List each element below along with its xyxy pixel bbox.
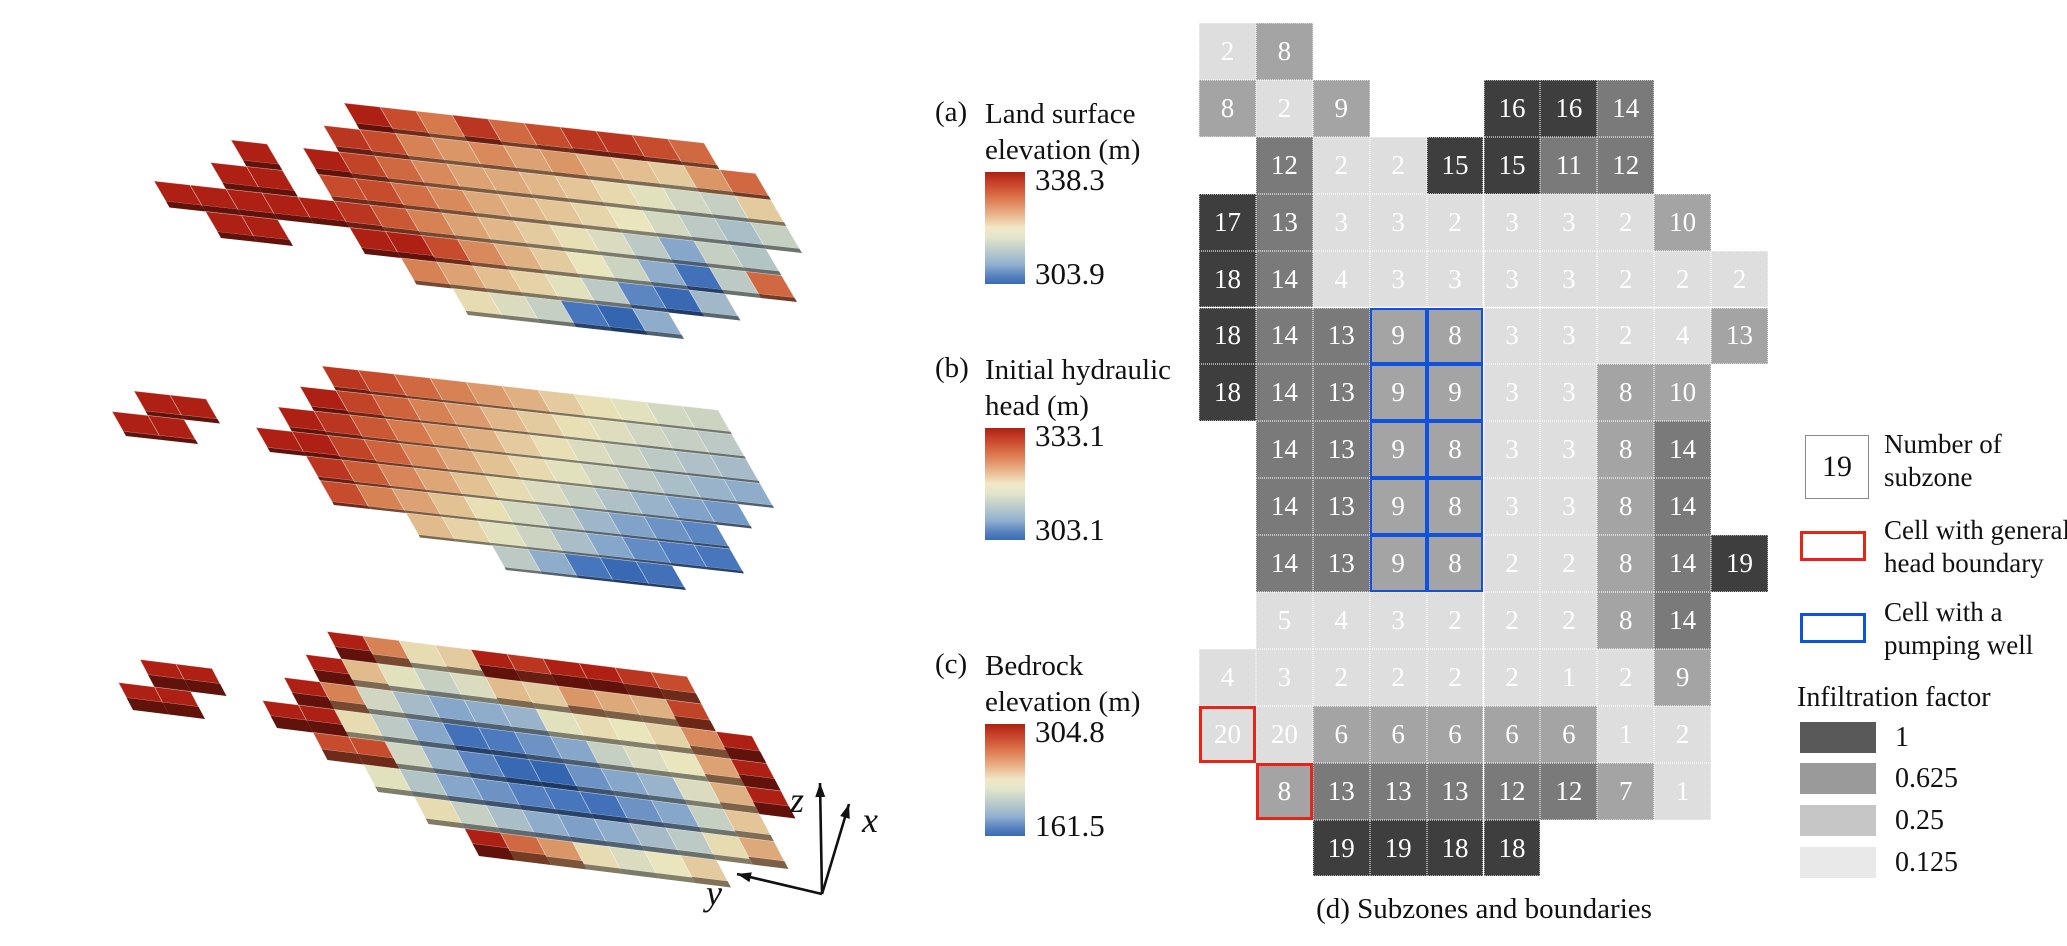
grid-cell: 3	[1540, 364, 1597, 421]
grid-cell: 2	[1199, 23, 1256, 80]
grid-cell: 13	[1427, 763, 1484, 820]
colorbar-c-max: 304.8	[1035, 714, 1105, 750]
grid-cell: 3	[1370, 592, 1427, 649]
x-axis-arrow	[822, 804, 849, 894]
legend-general-head-boundary-label: Cell with generalhead boundary	[1884, 514, 2067, 580]
grid-cell-pumping-well: 8	[1427, 308, 1484, 365]
grid-cell: 8	[1256, 23, 1313, 80]
grid-cell: 20	[1256, 706, 1313, 763]
grid-cell: 2	[1540, 535, 1597, 592]
grid-cell: 13	[1313, 308, 1370, 365]
grid-cell-pumping-well: 9	[1370, 478, 1427, 535]
grid-cell: 2	[1597, 649, 1654, 706]
grid-cell: 8	[1597, 421, 1654, 478]
grid-cell: 18	[1427, 820, 1484, 877]
panel-c-tag: (c)	[935, 648, 967, 681]
grid-cell: 2	[1370, 137, 1427, 194]
legend-infiltration-swatch	[1800, 847, 1876, 878]
legend-infiltration-value: 0.625	[1895, 763, 1958, 794]
subzone-grid: 2882916161412221515111217133323321018144…	[1199, 23, 1769, 877]
grid-cell: 6	[1427, 706, 1484, 763]
grid-cell: 12	[1597, 137, 1654, 194]
grid-cell: 14	[1256, 478, 1313, 535]
grid-cell: 13	[1313, 763, 1370, 820]
grid-cell: 1	[1540, 649, 1597, 706]
panel-a-title: Land surfaceelevation (m)	[985, 96, 1140, 168]
legend-subzone-label: Number ofsubzone	[1884, 428, 2002, 494]
grid-cell: 4	[1313, 592, 1370, 649]
grid-cell-pumping-well: 9	[1427, 364, 1484, 421]
grid-cell-pumping-well: 8	[1427, 421, 1484, 478]
colorbar-b-max: 333.1	[1035, 418, 1105, 454]
grid-cell: 6	[1313, 706, 1370, 763]
grid-cell: 2	[1711, 251, 1768, 308]
colorbar-b-min: 303.1	[1035, 512, 1105, 548]
grid-cell: 13	[1256, 194, 1313, 251]
grid-cell: 3	[1256, 649, 1313, 706]
legend-infiltration-swatch	[1800, 805, 1876, 836]
panel-c-title: Bedrockelevation (m)	[985, 648, 1140, 720]
grid-cell: 4	[1654, 308, 1711, 365]
grid-cell: 18	[1484, 820, 1541, 877]
colorbar-panel-b: (b) Initial hydraulichead (m) 333.1 303.…	[935, 352, 1190, 602]
grid-cell: 14	[1597, 80, 1654, 137]
grid-cell: 4	[1313, 251, 1370, 308]
legend-infiltration-classes: 10.6250.250.125	[1800, 722, 2060, 882]
grid-cell: 8	[1597, 364, 1654, 421]
grid-cell: 12	[1484, 763, 1541, 820]
colorbar-a-min: 303.9	[1035, 256, 1105, 292]
grid-cell: 3	[1540, 251, 1597, 308]
colorbar-panel-a: (a) Land surfaceelevation (m) 338.3 303.…	[935, 96, 1190, 346]
grid-cell: 3	[1484, 251, 1541, 308]
legend-infiltration-title: Infiltration factor	[1797, 682, 1991, 714]
grid-cell: 3	[1313, 194, 1370, 251]
grid-cell: 13	[1313, 478, 1370, 535]
grid-cell: 2	[1484, 649, 1541, 706]
grid-cell: 17	[1199, 194, 1256, 251]
grid-cell: 8	[1597, 478, 1654, 535]
colorbar-b	[985, 428, 1025, 540]
grid-cell: 3	[1540, 194, 1597, 251]
grid-cell: 13	[1313, 421, 1370, 478]
grid-cell: 2	[1370, 649, 1427, 706]
legend-infiltration-value: 0.125	[1895, 847, 1958, 878]
grid-cell: 3	[1427, 251, 1484, 308]
grid-cell: 14	[1256, 535, 1313, 592]
grid-cell: 2	[1256, 80, 1313, 137]
grid-cell: 8	[1199, 80, 1256, 137]
panel-d-caption: (d) Subzones and boundaries	[1199, 893, 1769, 926]
grid-cell: 4	[1199, 649, 1256, 706]
grid-cell: 2	[1654, 706, 1711, 763]
grid-cell: 2	[1484, 535, 1541, 592]
grid-cell-general-head-boundary: 8	[1256, 763, 1313, 820]
grid-cell-pumping-well: 9	[1370, 308, 1427, 365]
grid-cell: 6	[1370, 706, 1427, 763]
grid-cell-pumping-well: 9	[1370, 364, 1427, 421]
figure-root: zxy (a) Land surfaceelevation (m) 338.3 …	[0, 0, 2067, 946]
grid-cell: 13	[1711, 308, 1768, 365]
grid-cell-general-head-boundary: 20	[1199, 706, 1256, 763]
grid-cell: 10	[1654, 194, 1711, 251]
colorbar-c-min: 161.5	[1035, 808, 1105, 844]
grid-cell: 14	[1256, 308, 1313, 365]
grid-cell: 2	[1427, 194, 1484, 251]
grid-cell: 18	[1199, 308, 1256, 365]
grid-cell: 16	[1540, 80, 1597, 137]
legend-pumping-well-label: Cell with apumping well	[1884, 596, 2033, 662]
z-axis-label: z	[789, 780, 804, 820]
grid-cell: 3	[1370, 251, 1427, 308]
grid-cell: 1	[1654, 763, 1711, 820]
grid-cell: 12	[1256, 137, 1313, 194]
grid-cell: 3	[1484, 194, 1541, 251]
grid-cell: 9	[1313, 80, 1370, 137]
grid-cell: 18	[1199, 251, 1256, 308]
grid-cell: 14	[1256, 251, 1313, 308]
grid-cell: 8	[1597, 592, 1654, 649]
grid-cell: 6	[1540, 706, 1597, 763]
grid-cell: 3	[1370, 194, 1427, 251]
colorbar-a	[985, 172, 1025, 284]
surface-a	[154, 103, 802, 339]
legend-infiltration-swatch	[1800, 763, 1876, 794]
legend-infiltration-value: 0.25	[1895, 805, 1944, 836]
z-axis-arrow	[820, 783, 822, 894]
grid-cell: 14	[1654, 478, 1711, 535]
grid-cell: 2	[1427, 592, 1484, 649]
grid-cell: 12	[1540, 763, 1597, 820]
legend-general-head-boundary-swatch	[1800, 531, 1866, 561]
legend-pumping-well-swatch	[1800, 613, 1866, 643]
grid-cell: 2	[1427, 649, 1484, 706]
grid-cell: 14	[1654, 592, 1711, 649]
legend-infiltration-swatch	[1800, 722, 1876, 753]
grid-cell-pumping-well: 9	[1370, 535, 1427, 592]
surface-b	[112, 366, 774, 590]
grid-cell: 18	[1199, 364, 1256, 421]
grid-cell: 2	[1484, 592, 1541, 649]
grid-cell: 14	[1654, 421, 1711, 478]
grid-cell: 7	[1597, 763, 1654, 820]
grid-cell-pumping-well: 9	[1370, 421, 1427, 478]
grid-cell: 13	[1313, 364, 1370, 421]
x-axis-label: x	[861, 800, 878, 840]
grid-cell: 3	[1484, 364, 1541, 421]
grid-cell: 19	[1711, 535, 1768, 592]
grid-cell: 2	[1597, 251, 1654, 308]
grid-cell: 1	[1597, 706, 1654, 763]
grid-cell: 5	[1256, 592, 1313, 649]
panel-b-title: Initial hydraulichead (m)	[985, 352, 1171, 424]
grid-cell: 11	[1540, 137, 1597, 194]
surface-c	[119, 632, 796, 888]
colorbar-c	[985, 724, 1025, 836]
grid-cell: 15	[1484, 137, 1541, 194]
grid-cell: 3	[1540, 478, 1597, 535]
grid-cell: 2	[1654, 251, 1711, 308]
grid-cell: 3	[1540, 421, 1597, 478]
grid-cell: 19	[1313, 820, 1370, 877]
grid-cell: 2	[1597, 308, 1654, 365]
grid-cell: 3	[1484, 421, 1541, 478]
grid-cell: 2	[1597, 194, 1654, 251]
grid-cell: 6	[1484, 706, 1541, 763]
grid-cell: 2	[1313, 649, 1370, 706]
3d-surfaces-canvas: zxy	[0, 0, 980, 946]
grid-cell: 13	[1313, 535, 1370, 592]
grid-cell: 3	[1484, 308, 1541, 365]
grid-cell-pumping-well: 8	[1427, 535, 1484, 592]
grid-cell: 3	[1540, 308, 1597, 365]
panel-a-tag: (a)	[935, 96, 967, 129]
grid-cell: 15	[1427, 137, 1484, 194]
legend-subzone-box: 19	[1805, 435, 1869, 499]
grid-cell: 16	[1484, 80, 1541, 137]
grid-cell: 3	[1484, 478, 1541, 535]
grid-cell: 2	[1313, 137, 1370, 194]
legend-subzone-value: 19	[1822, 450, 1852, 484]
colorbar-panel-c: (c) Bedrockelevation (m) 304.8 161.5	[935, 648, 1190, 898]
grid-cell: 14	[1256, 421, 1313, 478]
grid-cell: 14	[1256, 364, 1313, 421]
grid-cell: 10	[1654, 364, 1711, 421]
grid-cell: 13	[1370, 763, 1427, 820]
grid-cell: 8	[1597, 535, 1654, 592]
colorbar-a-max: 338.3	[1035, 162, 1105, 198]
y-axis-label: y	[703, 873, 722, 913]
panel-b-tag: (b)	[935, 352, 969, 385]
grid-cell: 19	[1370, 820, 1427, 877]
grid-cell: 9	[1654, 649, 1711, 706]
grid-cell: 14	[1654, 535, 1711, 592]
legend-infiltration-value: 1	[1895, 722, 1909, 753]
grid-cell-pumping-well: 8	[1427, 478, 1484, 535]
grid-cell: 2	[1540, 592, 1597, 649]
